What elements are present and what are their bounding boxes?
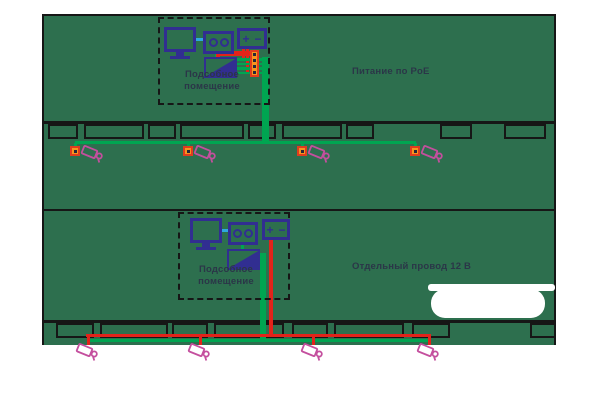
psu-plus-label: + — [242, 33, 249, 45]
camera-icon — [415, 343, 443, 367]
window-opening — [530, 323, 556, 338]
camera-icon — [79, 145, 107, 169]
wiring-diagram-canvas: + − Подсобное помещение Питание по PoE +… — [0, 0, 600, 400]
window-opening — [346, 124, 374, 139]
poe-camera-bus — [75, 141, 416, 144]
scheme-caption-bottom: Отдельный провод 12 В — [352, 261, 471, 272]
power-supply-icon: + − — [262, 219, 290, 240]
camera-icon — [306, 145, 334, 169]
camera-icon — [74, 343, 102, 367]
port-hole — [253, 59, 256, 62]
window-opening — [282, 124, 342, 139]
recorder-icon — [228, 222, 258, 245]
window-opening — [48, 124, 78, 139]
scheme-caption-top: Питание по PoE — [352, 66, 430, 77]
window-opening — [180, 124, 244, 139]
monitor-base — [196, 247, 216, 250]
room-label-bottom: Подсобное помещение — [176, 264, 276, 287]
monitor-base — [170, 56, 190, 59]
reel-icon — [244, 229, 253, 238]
reel-icon — [220, 38, 229, 47]
camera-icon — [186, 343, 214, 367]
port-hole — [253, 65, 256, 68]
scheme-divider-line — [42, 209, 556, 211]
building-left-edge — [42, 14, 44, 345]
window-opening — [440, 124, 472, 139]
recorder-icon — [203, 31, 234, 54]
window-opening — [148, 124, 176, 139]
camera-icon — [299, 343, 327, 367]
psu-minus-label: − — [255, 33, 262, 45]
monitor-icon — [164, 27, 196, 52]
psu-plus-label: + — [266, 224, 273, 236]
monitor-icon — [190, 218, 222, 243]
reel-icon — [233, 229, 242, 238]
reel-icon — [209, 38, 218, 47]
port-hole — [253, 53, 256, 56]
camera-icon — [419, 145, 447, 169]
window-opening — [504, 124, 546, 139]
window-opening — [84, 124, 144, 139]
network-camera-bus — [88, 339, 430, 342]
building-top-edge — [42, 14, 556, 16]
psu-minus-label: − — [279, 224, 286, 236]
building-right-edge — [554, 14, 556, 345]
erased-watermark-blob — [431, 289, 545, 318]
camera-icon — [192, 145, 220, 169]
power-camera-bus — [86, 334, 431, 337]
power-supply-icon: + − — [237, 28, 267, 49]
room-label-top: Подсобное помещение — [162, 69, 262, 92]
